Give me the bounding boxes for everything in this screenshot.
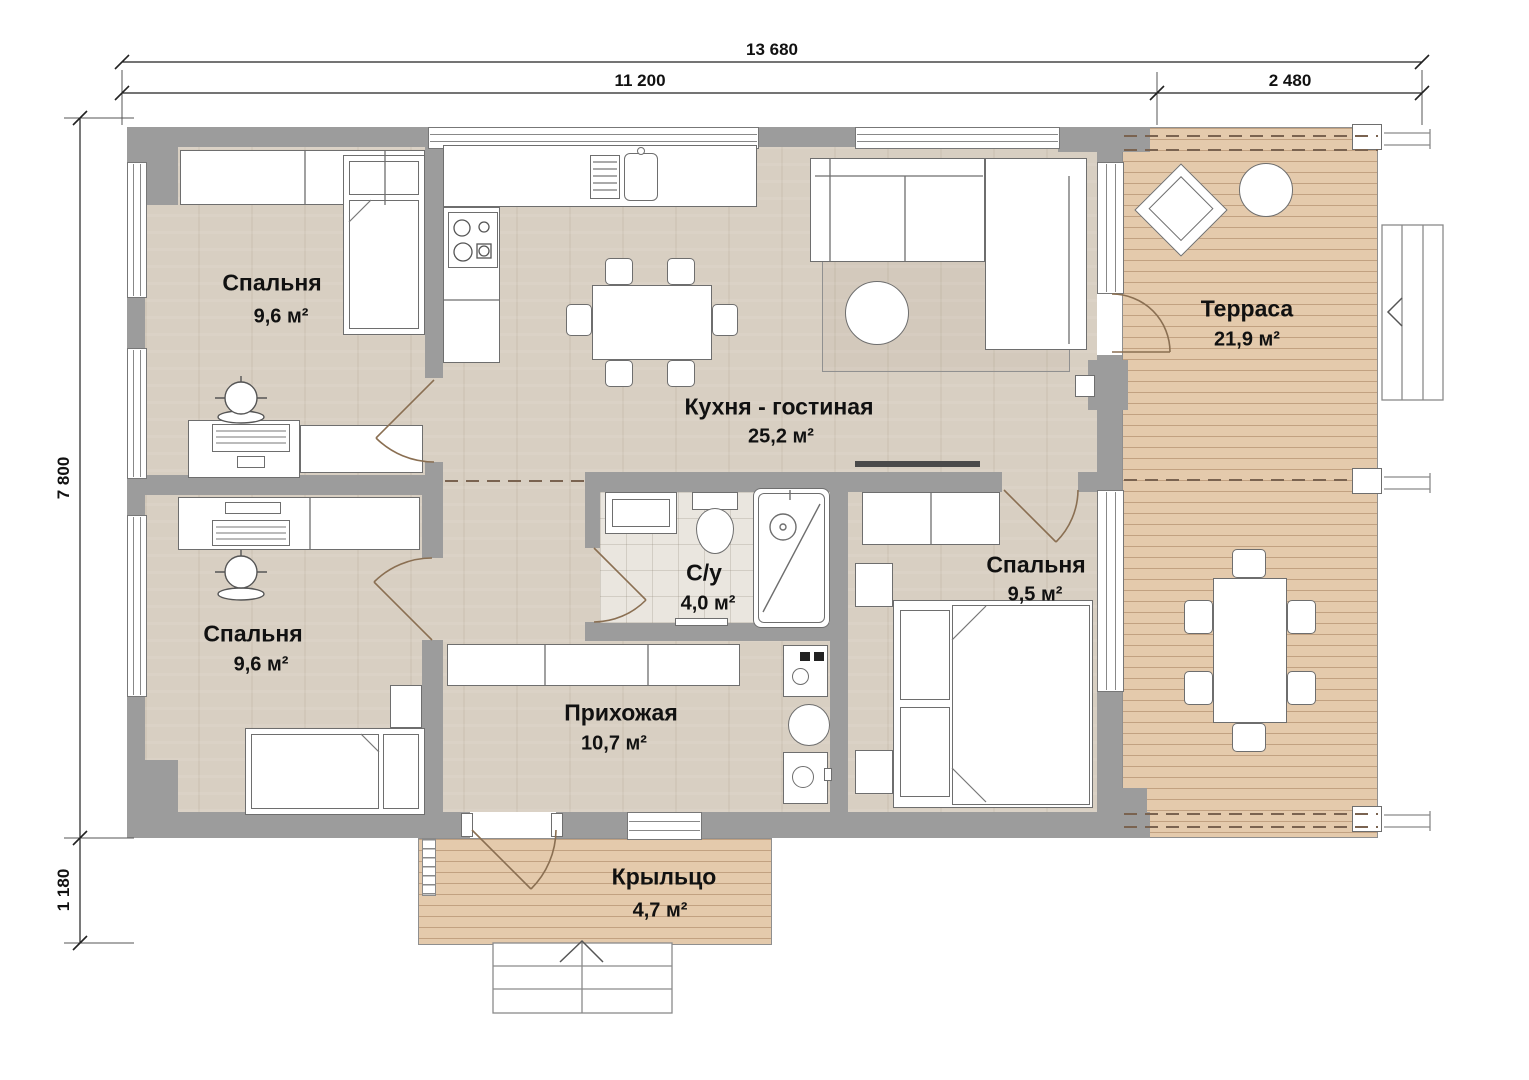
wall <box>127 296 145 348</box>
dining-chair <box>667 258 695 285</box>
door-jamb <box>551 813 563 837</box>
dining-chair <box>605 258 633 285</box>
sofa-chaise <box>985 158 1087 350</box>
faucet <box>637 147 645 155</box>
room-label-bedroom-top-left: Спальня <box>222 270 321 297</box>
post <box>1352 806 1382 832</box>
room-area-terrace: 21,9 м² <box>1214 329 1280 352</box>
chair-cushion <box>1148 176 1213 241</box>
dining-chair <box>667 360 695 387</box>
room-label-kitchen-living: Кухня - гостиная <box>685 394 874 421</box>
outdoor-chair <box>1184 671 1213 705</box>
outdoor-chair <box>1184 600 1213 634</box>
room-area-bedroom-right: 9,5 м² <box>1008 584 1063 607</box>
wall <box>830 472 848 812</box>
wall <box>425 462 443 495</box>
dryer-handle <box>824 768 832 781</box>
nightstand <box>855 750 893 794</box>
wall <box>127 812 470 838</box>
pillow <box>383 734 419 809</box>
towel-rail <box>675 618 728 626</box>
keyboard <box>212 520 290 546</box>
dim-terrace-width: 2 480 <box>1269 71 1312 91</box>
washer-button <box>800 652 810 661</box>
post <box>1352 124 1382 150</box>
washer-button <box>814 652 824 661</box>
wall <box>145 475 443 495</box>
blanket <box>952 605 1090 805</box>
wall <box>422 640 443 812</box>
outdoor-chair <box>1232 549 1266 578</box>
pillow <box>900 707 950 797</box>
wardrobe <box>862 492 1000 545</box>
dining-chair <box>566 304 592 336</box>
outdoor-chair <box>1232 723 1266 752</box>
wall-cabinet <box>1075 375 1095 397</box>
pillow <box>900 610 950 700</box>
window <box>127 348 147 479</box>
shelf <box>300 425 423 473</box>
kitchen-sink <box>624 153 658 201</box>
window <box>127 162 147 298</box>
coffee-table <box>845 281 909 345</box>
window <box>855 127 1060 149</box>
shower-tray <box>758 493 825 623</box>
room-area-bedroom-top-left: 9,6 м² <box>254 306 309 329</box>
room-area-bathroom: 4,0 м² <box>681 593 736 616</box>
dim-total-width: 13 680 <box>746 40 798 60</box>
dim-porch-height: 1 180 <box>54 869 74 912</box>
blanket <box>349 200 419 329</box>
wall <box>422 495 443 558</box>
room-area-porch: 4,7 м² <box>633 900 688 923</box>
wall <box>757 127 855 147</box>
pillow <box>349 161 419 195</box>
wall <box>127 147 145 162</box>
nightstand <box>855 563 893 607</box>
washer-door <box>792 668 809 685</box>
wall <box>425 147 443 378</box>
cabinet <box>390 685 422 728</box>
wall <box>127 127 428 147</box>
wall <box>127 760 178 812</box>
mouse-pad <box>237 456 265 468</box>
floor-plan: 13 680 11 200 2 480 7 800 1 180 Спальня … <box>0 0 1529 1080</box>
dim-house-height: 7 800 <box>54 457 74 500</box>
outdoor-chair <box>1287 600 1316 634</box>
stove <box>448 212 498 268</box>
sink-basin <box>612 499 670 527</box>
door-jamb <box>461 813 473 837</box>
dining-chair <box>605 360 633 387</box>
window <box>1097 490 1124 692</box>
boiler <box>788 704 830 746</box>
wall <box>1078 472 1097 492</box>
dryer-door <box>792 766 814 788</box>
hall-closet <box>447 644 740 686</box>
dim-house-width: 11 200 <box>614 71 665 91</box>
sofa <box>810 158 985 262</box>
wall <box>585 492 600 548</box>
room-area-hallway: 10,7 м² <box>581 733 647 756</box>
room-label-bathroom: С/у <box>686 560 722 587</box>
wall <box>127 477 145 515</box>
wall <box>1097 147 1122 162</box>
ladder <box>422 838 436 896</box>
room-label-hallway: Прихожая <box>564 700 677 727</box>
porch-deck <box>418 838 772 945</box>
room-label-bedroom-bottom-left: Спальня <box>203 621 302 648</box>
side-table <box>1239 163 1293 217</box>
window <box>627 812 702 840</box>
outdoor-chair <box>1287 671 1316 705</box>
tv <box>855 461 980 467</box>
dining-chair <box>712 304 738 336</box>
room-label-porch: Крыльцо <box>612 864 717 891</box>
room-label-bedroom-right: Спальня <box>986 552 1085 579</box>
wall <box>556 812 627 838</box>
window <box>1097 162 1124 294</box>
post <box>1352 468 1382 494</box>
sink-drainer <box>590 155 620 199</box>
wall <box>700 812 1150 838</box>
monitor <box>225 502 281 514</box>
room-area-kitchen-living: 25,2 м² <box>748 426 814 449</box>
room-label-terrace: Терраса <box>1201 296 1293 323</box>
keyboard <box>212 424 290 452</box>
room-area-bedroom-bottom-left: 9,6 м² <box>234 654 289 677</box>
window <box>127 515 147 697</box>
blanket <box>251 734 379 809</box>
outdoor-table <box>1213 578 1287 723</box>
dining-table <box>592 285 712 360</box>
